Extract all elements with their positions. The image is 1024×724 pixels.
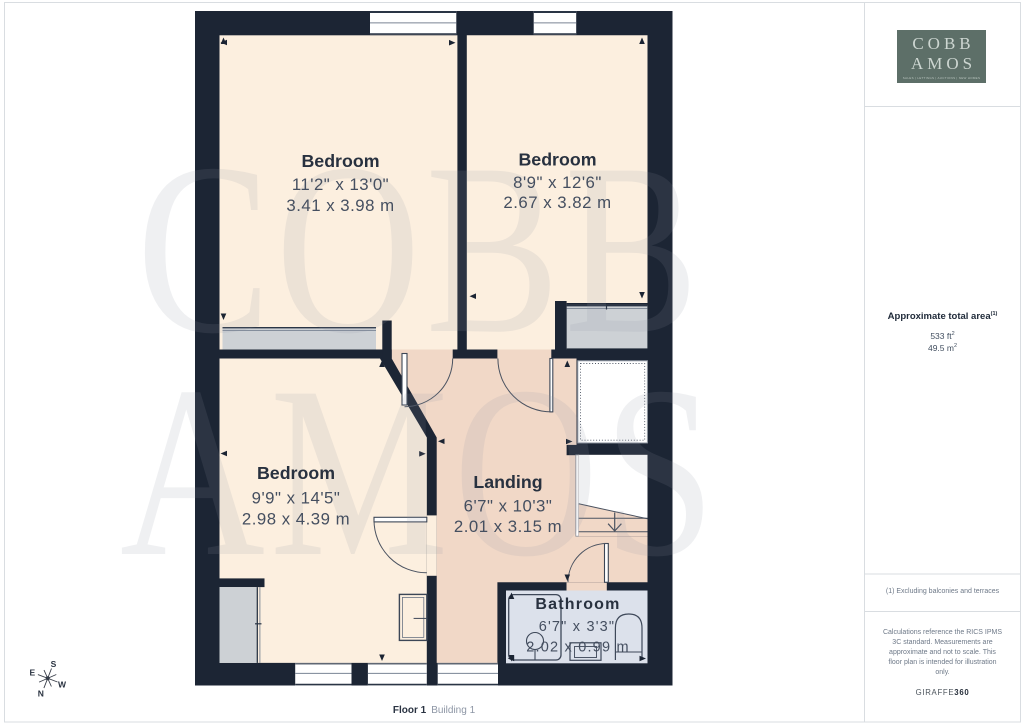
svg-text:6'7" x 3'3": 6'7" x 3'3" xyxy=(539,619,616,635)
svg-text:N: N xyxy=(38,688,44,698)
svg-text:2.67 x 3.82 m: 2.67 x 3.82 m xyxy=(503,193,611,212)
svg-text:6'7" x 10'3": 6'7" x 10'3" xyxy=(464,497,553,516)
svg-text:3.41 x 3.98 m: 3.41 x 3.98 m xyxy=(286,196,394,215)
svg-text:Bedroom: Bedroom xyxy=(301,151,379,171)
svg-text:Landing: Landing xyxy=(473,472,542,492)
svg-text:8'9" x 12'6": 8'9" x 12'6" xyxy=(513,173,602,192)
svg-text:S: S xyxy=(51,659,57,669)
svg-text:Floor 1Building 1: Floor 1Building 1 xyxy=(393,705,476,716)
svg-text:Bathroom: Bathroom xyxy=(535,596,620,613)
svg-text:11'2" x 13'0": 11'2" x 13'0" xyxy=(292,175,389,194)
svg-text:Bedroom: Bedroom xyxy=(518,150,596,170)
svg-text:2.02 x 0.99 m: 2.02 x 0.99 m xyxy=(526,640,629,656)
svg-text:W: W xyxy=(58,680,67,690)
svg-text:2.98 x 4.39 m: 2.98 x 4.39 m xyxy=(242,510,350,529)
svg-text:AMOS: AMOS xyxy=(120,336,720,607)
svg-text:E: E xyxy=(29,668,35,678)
svg-text:2.01 x 3.15 m: 2.01 x 3.15 m xyxy=(454,517,562,536)
svg-text:9'9" x 14'5": 9'9" x 14'5" xyxy=(252,489,341,508)
svg-text:Bedroom: Bedroom xyxy=(257,463,335,483)
